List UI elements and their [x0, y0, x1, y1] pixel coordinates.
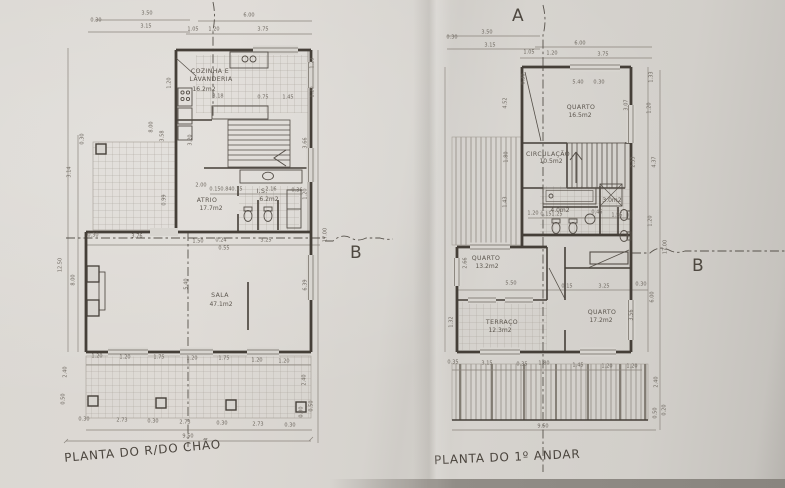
section-marker-b-right: B [692, 256, 704, 276]
section-marker-b-left: B [350, 243, 362, 263]
pergola-hatch [452, 364, 648, 420]
stairs [228, 120, 290, 167]
photo-of-architectural-floor-plans: 3.500.303.156.001.051.203.751.231.203.66… [0, 0, 785, 488]
floor-plan-drawing [0, 0, 785, 488]
terrace-tile-hatch [459, 302, 547, 350]
terrace-tile-hatch [93, 142, 176, 230]
first-floor-plan [445, 5, 785, 472]
section-marker-a: A [512, 6, 524, 26]
lower-roof-hatch [452, 137, 522, 245]
stairs [567, 143, 625, 188]
door-swing [176, 58, 196, 76]
fireplace [87, 266, 248, 330]
bathroom-tile-hatch [239, 186, 299, 230]
ground-floor-plan [64, 2, 393, 447]
